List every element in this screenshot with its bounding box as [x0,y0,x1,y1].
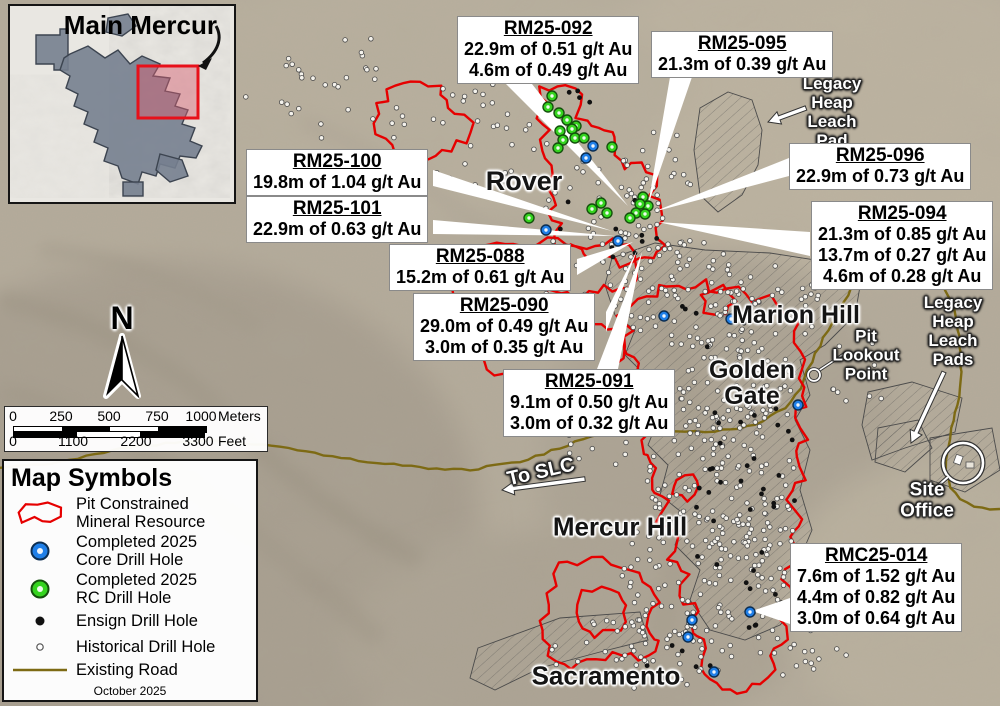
legend-item-core-drill-hole: Completed 2025Core Drill Hole [4,533,256,569]
callout-title: RM25-100 [253,151,421,172]
callout-rm25-088: RM25-08815.2m of 0.61 g/t Au [389,244,571,291]
callout-rm25-100: RM25-10019.8m of 1.04 g/t Au [246,149,428,196]
legend-item-pit-outline: Pit ConstrainedMineral Resource [4,495,256,531]
callout-intercept: 22.9m of 0.63 g/t Au [253,219,421,240]
annotation-legacy-heap-leach-pad: LegacyHeapLeachPad [803,74,862,150]
callout-rm25-096: RM25-09622.9m of 0.73 g/t Au [789,143,971,190]
legend-item-label: Ensign Drill Hole [76,612,198,630]
callout-title: RM25-095 [658,33,826,54]
callout-intercept: 21.3m of 0.85 g/t Au [818,224,986,245]
legend-item-label: Existing Road [76,661,178,679]
scale-tick-meters: 750 [145,408,168,424]
place-label-golden-gate: GoldenGate [709,357,795,410]
map-symbols-legend: Map Symbols Pit ConstrainedMineral Resou… [2,459,258,702]
legend-item-road: Existing Road [4,661,256,679]
annotation-pit-lookout-point: PitLookoutPoint [832,326,899,383]
scale-tick-feet: 1100 [58,433,88,449]
callout-rm25-090: RM25-09029.0m of 0.49 g/t Au3.0m of 0.35… [413,293,595,361]
scale-unit-meters: Meters [218,408,261,424]
place-label-mercur-hill: Mercur Hill [553,513,687,540]
legend-item-label: Completed 2025RC Drill Hole [76,571,197,607]
historical-drill-hole-icon [4,635,76,659]
callout-title: RM25-101 [253,198,421,219]
inset-location-map: Main Mercur [8,4,236,204]
legend-item-label: Pit ConstrainedMineral Resource [76,495,205,531]
scale-tick-feet: 3300 [182,433,213,449]
road-icon [4,665,76,675]
inset-title: Main Mercur [64,10,217,41]
callout-rm25-095: RM25-09521.3m of 0.39 g/t Au [651,31,833,78]
place-label-rover: Rover [486,167,563,195]
main-mercur-highlight-rect [138,66,198,118]
callout-intercept: 29.0m of 0.49 g/t Au [420,316,588,337]
callout-intercept: 19.8m of 1.04 g/t Au [253,172,421,193]
scale-tick-feet: 2200 [120,433,151,449]
rc-drill-hole-icon [4,577,76,601]
legend-item-historical-drill-hole: Historical Drill Hole [4,635,256,659]
core-drill-hole-icon [4,539,76,563]
callout-intercept: 4.6m of 0.49 g/t Au [464,60,632,81]
annotation-site-office: SiteOffice [900,480,954,523]
callout-intercept: 4.6m of 0.28 g/t Au [818,266,986,287]
scale-tick-meters: 1000 [185,408,216,424]
callout-rmc25-014: RMC25-0147.6m of 1.52 g/t Au4.4m of 0.82… [790,543,962,632]
callout-rm25-094: RM25-09421.3m of 0.85 g/t Au13.7m of 0.2… [811,201,993,290]
scale-tick-meters: 250 [49,408,72,424]
place-label-sacramento: Sacramento [532,662,681,689]
callout-intercept: 9.1m of 0.50 g/t Au [510,392,668,413]
callout-intercept: 13.7m of 0.27 g/t Au [818,245,986,266]
scale-tick-meters: 500 [97,408,120,424]
mercur-drill-results-map: Main Mercur N 02505007501000011002200330… [0,0,1000,706]
callout-intercept: 3.0m of 0.64 g/t Au [797,608,955,629]
legend-item-label: Historical Drill Hole [76,638,215,656]
callout-intercept: 7.6m of 1.52 g/t Au [797,566,955,587]
place-label-marion-hill: Marion Hill [732,302,860,328]
callout-rm25-101: RM25-10122.9m of 0.63 g/t Au [246,196,428,243]
callout-intercept: 21.3m of 0.39 g/t Au [658,54,826,75]
north-arrow: N [94,300,150,406]
ensign-drill-hole-icon [4,609,76,633]
callout-intercept: 3.0m of 0.35 g/t Au [420,337,588,358]
callout-intercept: 15.2m of 0.61 g/t Au [396,267,564,288]
callout-intercept: 22.9m of 0.73 g/t Au [796,166,964,187]
callout-intercept: 4.4m of 0.82 g/t Au [797,587,955,608]
scale-bar: 025050075010000110022003300MetersFeet [4,406,268,452]
callout-rm25-092: RM25-09222.9m of 0.51 g/t Au4.6m of 0.49… [457,16,639,84]
legend-item-ensign-drill-hole: Ensign Drill Hole [4,609,256,633]
callout-title: RMC25-014 [797,545,955,566]
callout-title: RM25-096 [796,145,964,166]
legend-item-rc-drill-hole: Completed 2025RC Drill Hole [4,571,256,607]
legend-date: October 2025 [4,684,256,698]
callout-title: RM25-094 [818,203,986,224]
annotation-legacy-heap-leach-pads: LegacyHeapLeachPads [924,293,983,369]
north-label: N [110,300,133,337]
scale-tick-meters: 0 [9,408,17,424]
scale-bar-feet [13,431,205,438]
legend-title: Map Symbols [11,464,256,493]
pit-outline-icon [4,496,76,530]
legend-item-label: Completed 2025Core Drill Hole [76,533,197,569]
callout-title: RM25-088 [396,246,564,267]
scale-unit-feet: Feet [218,433,246,449]
callout-rm25-091: RM25-0919.1m of 0.50 g/t Au3.0m of 0.32 … [503,369,675,437]
callout-title: RM25-092 [464,18,632,39]
callout-intercept: 22.9m of 0.51 g/t Au [464,39,632,60]
callout-title: RM25-091 [510,371,668,392]
callout-intercept: 3.0m of 0.32 g/t Au [510,413,668,434]
scale-tick-feet: 0 [9,433,17,449]
callout-title: RM25-090 [420,295,588,316]
